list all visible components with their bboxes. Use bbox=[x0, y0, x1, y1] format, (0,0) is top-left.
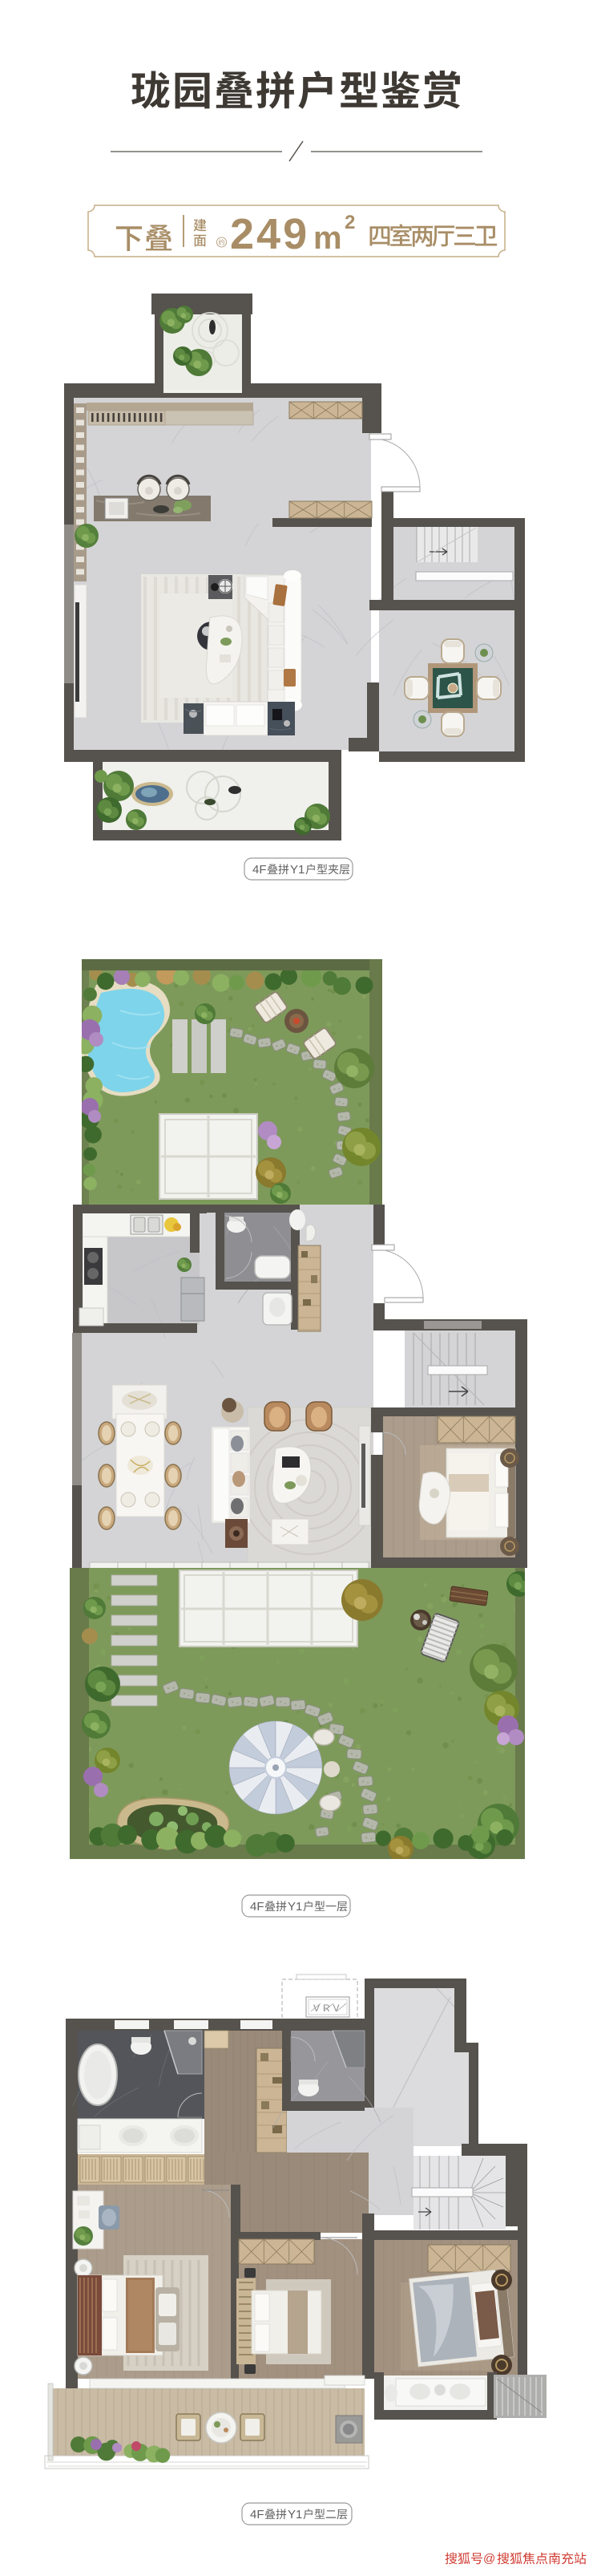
svg-text:4F: 4F bbox=[250, 1900, 264, 1914]
svg-text:@: @ bbox=[483, 2552, 495, 2566]
svg-text:Y1: Y1 bbox=[290, 863, 305, 877]
svg-text:4F: 4F bbox=[250, 2508, 264, 2521]
svg-text:Y1: Y1 bbox=[288, 1900, 302, 1914]
svg-text:Y1: Y1 bbox=[288, 2508, 302, 2521]
svg-text:m: m bbox=[313, 221, 342, 256]
svg-text:2: 2 bbox=[345, 212, 355, 233]
svg-text:4F: 4F bbox=[252, 863, 267, 877]
svg-text:249: 249 bbox=[230, 210, 309, 258]
